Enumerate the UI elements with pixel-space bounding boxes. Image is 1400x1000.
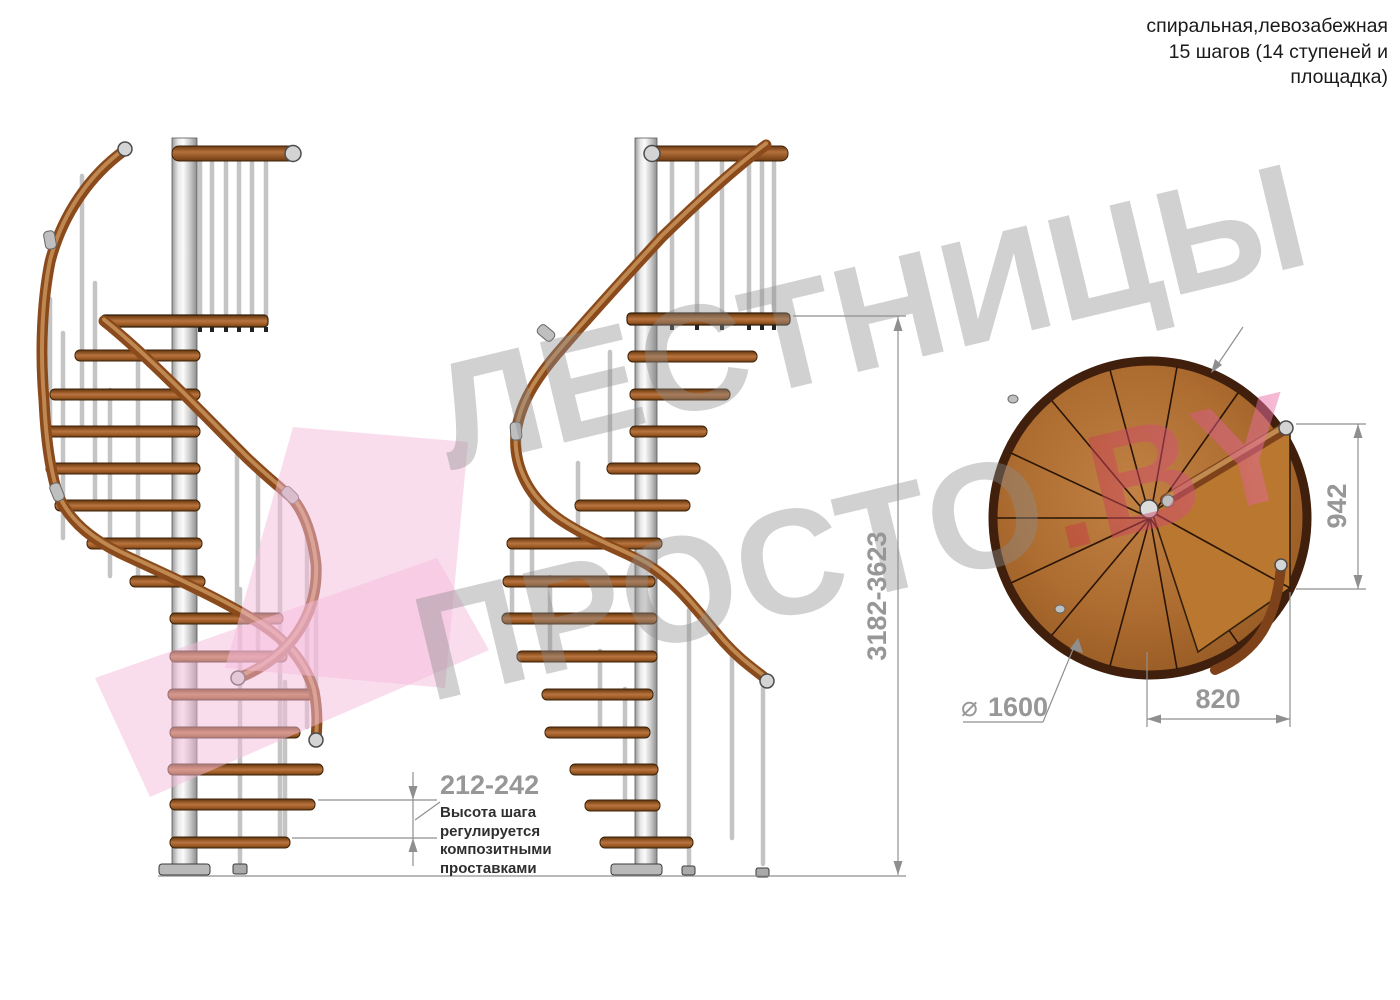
landing-ticks	[198, 327, 268, 332]
step	[46, 463, 200, 474]
svg-text:942: 942	[1322, 483, 1352, 528]
baluster-foot	[233, 864, 247, 874]
rail-end-cap	[1275, 559, 1287, 571]
title-line-3: площадка)	[1146, 65, 1388, 91]
step	[607, 463, 700, 474]
title-block: спиральная,левозабежная 15 шагов (14 сту…	[1146, 14, 1388, 91]
step	[45, 426, 200, 437]
rail-end-cap	[644, 146, 660, 162]
step-height-note: Высота шага регулируется композитными пр…	[440, 804, 552, 878]
rail-end-cap	[760, 674, 774, 688]
rail-end-cap	[118, 142, 132, 156]
title-line-1: спиральная,левозабежная	[1146, 14, 1388, 40]
step	[170, 799, 315, 810]
diameter-symbol: ⌀	[961, 691, 978, 722]
svg-text:212-242: 212-242	[440, 770, 539, 800]
svg-text:3182-3623: 3182-3623	[862, 531, 892, 660]
top-rail	[172, 146, 296, 161]
step	[570, 764, 658, 775]
rim-connector	[1055, 605, 1065, 613]
pole-base-flange	[159, 864, 210, 875]
pole-base-flange	[611, 864, 662, 875]
step	[55, 500, 200, 511]
step	[585, 800, 660, 811]
rail-end-cap	[309, 733, 323, 747]
plan-leader-arrow	[1211, 327, 1243, 373]
baluster-foot	[682, 866, 695, 875]
drawing-sheet: ЛЕСТНИЦЫ ПРОСТО .BY 3182-3623 212-242	[0, 0, 1400, 1000]
step	[170, 837, 290, 848]
svg-text:1600: 1600	[988, 692, 1048, 722]
svg-text:820: 820	[1195, 684, 1240, 714]
rail-end-cap	[285, 146, 301, 162]
staircase-diagram: ЛЕСТНИЦЫ ПРОСТО .BY 3182-3623 212-242	[0, 0, 1400, 1000]
step	[600, 837, 693, 848]
step	[545, 727, 650, 738]
landing-platform	[101, 315, 268, 327]
watermark: ЛЕСТНИЦЫ ПРОСТО .BY	[95, 130, 1323, 797]
title-line-2: 15 шагов (14 ступеней и	[1146, 40, 1388, 66]
rim-connector	[1008, 395, 1018, 403]
